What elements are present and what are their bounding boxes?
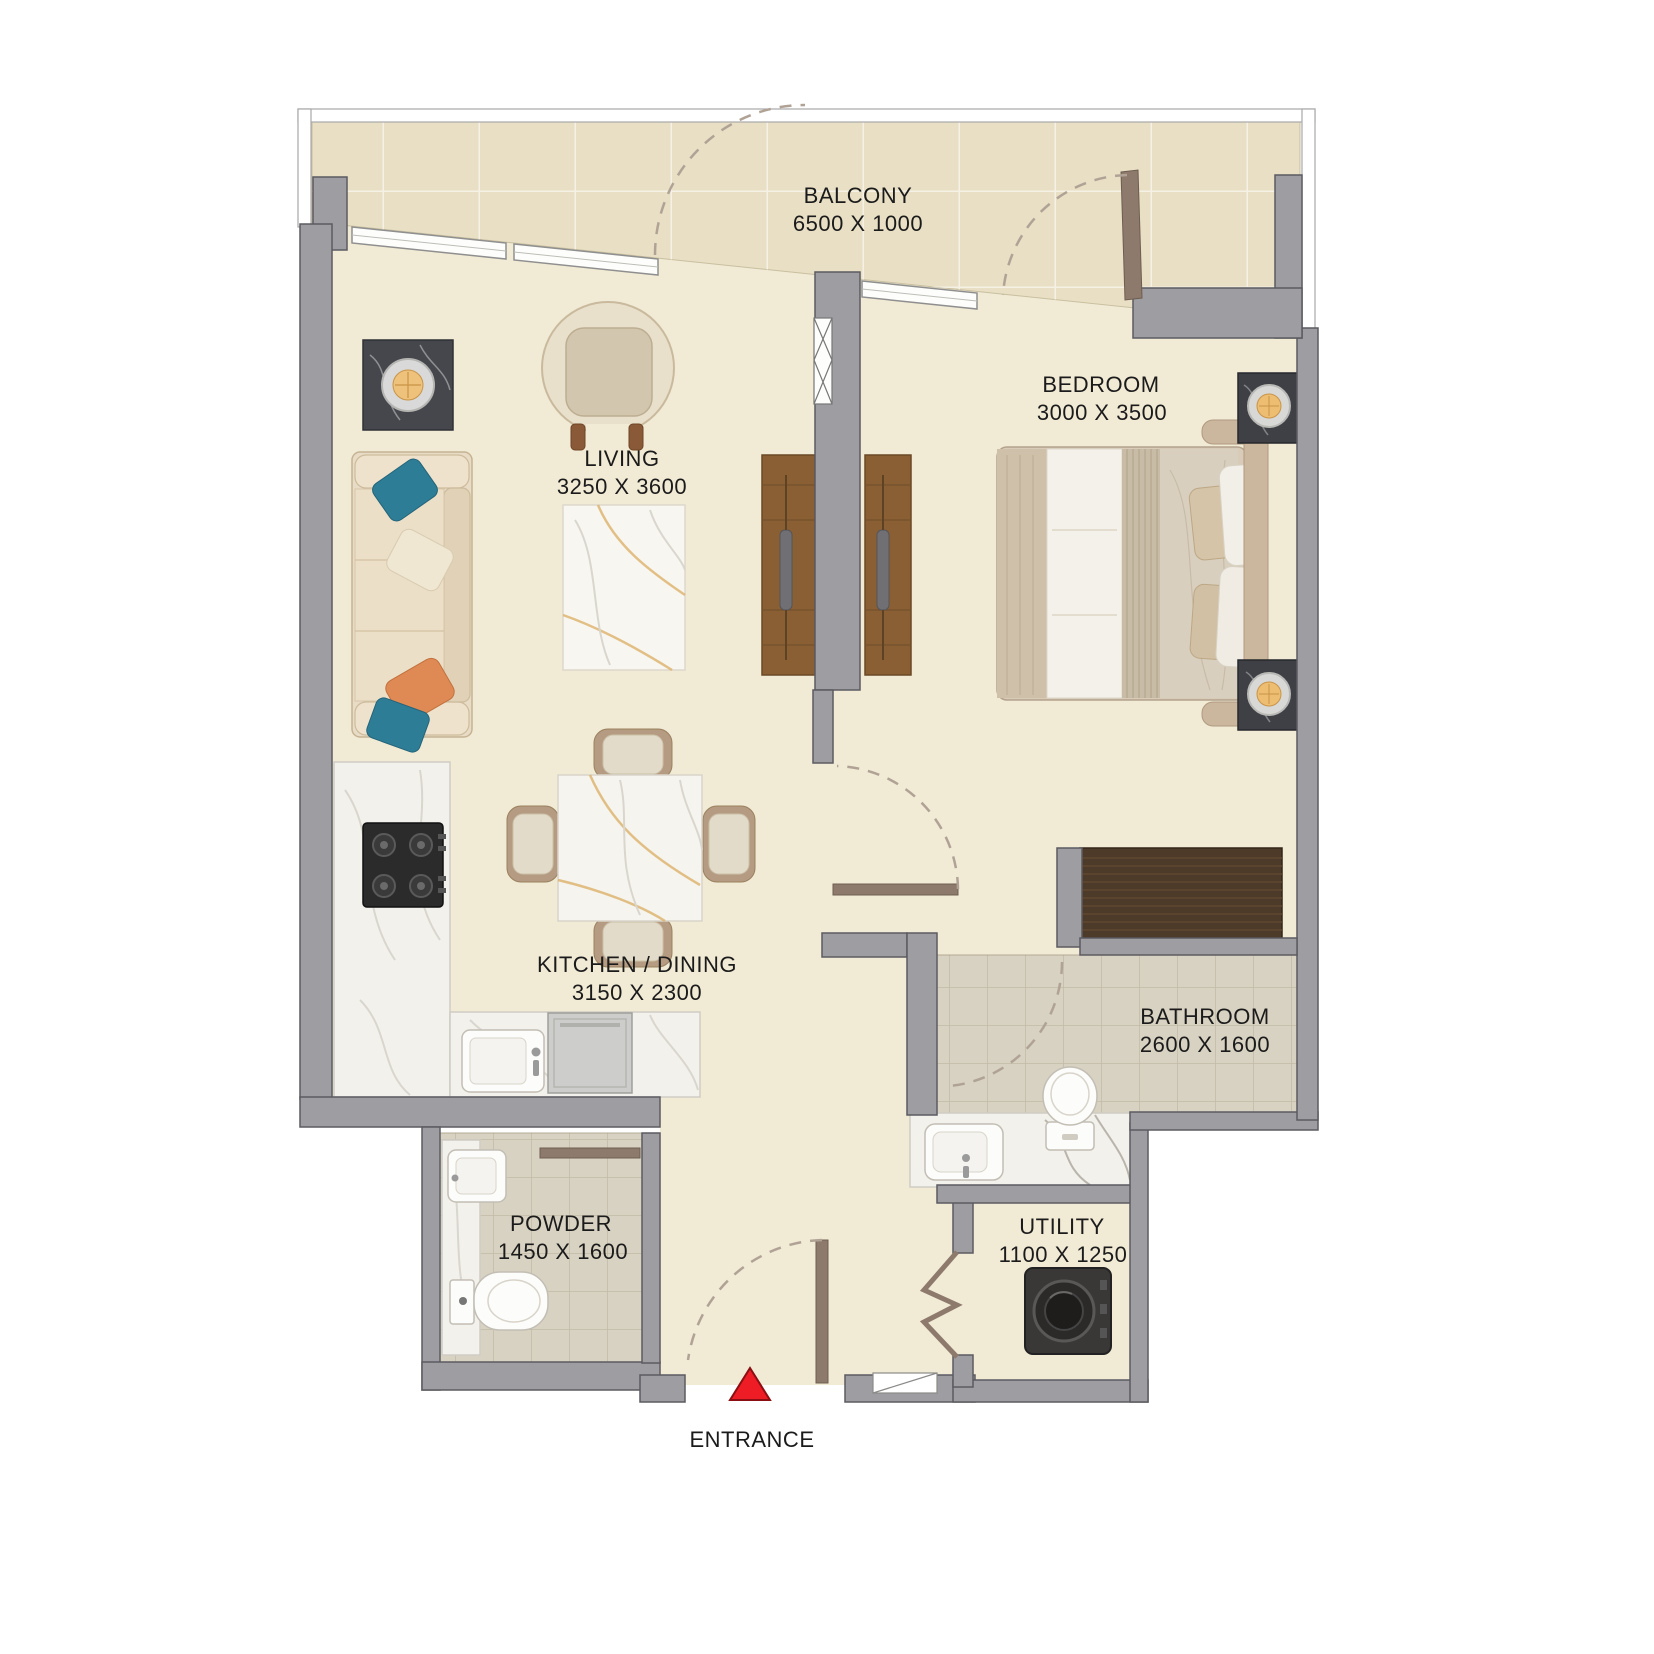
faucet: [962, 1154, 970, 1162]
room-label-utility: UTILITY: [1019, 1214, 1104, 1239]
room-dims-balcony: 6500 X 1000: [793, 211, 923, 236]
bathroom-vanity: [910, 1113, 1133, 1187]
room-label-balcony: BALCONY: [804, 183, 913, 208]
toilet-powder: [450, 1272, 548, 1330]
room-label-powder: POWDER: [510, 1211, 612, 1236]
sofa: [352, 452, 472, 754]
dining-chair: [507, 806, 559, 882]
room-dims-powder: 1450 X 1600: [498, 1239, 628, 1264]
room-dims-bedroom: 3000 X 3500: [1037, 400, 1167, 425]
bed: [997, 420, 1268, 726]
wardrobe: [1080, 848, 1282, 938]
toilet-bathroom: [1043, 1067, 1097, 1150]
entrance-label: ENTRANCE: [689, 1427, 814, 1452]
bed-throw: [1122, 449, 1160, 698]
dining-table: [558, 775, 702, 921]
bed-sheet: [1047, 449, 1122, 698]
room-label-living: LIVING: [584, 446, 659, 471]
washing-machine: [1025, 1268, 1111, 1354]
sliding-door-powder: [540, 1148, 640, 1158]
door-leaf-bedroom-balcony: [1121, 170, 1142, 300]
column-detail: [814, 318, 832, 404]
room-dims-living: 3250 X 3600: [557, 474, 687, 499]
kitchen-sink: [462, 1030, 544, 1092]
nightstand-bottom: [1238, 660, 1300, 730]
room-label-bathroom: BATHROOM: [1140, 1004, 1269, 1029]
door-leaf-entrance: [816, 1240, 828, 1383]
living-rug: [563, 505, 685, 670]
floor-plan-drawing: BALCONY 6500 X 1000 LIVING 3250 X 3600 B…: [0, 0, 1654, 1654]
stove: [363, 823, 446, 907]
dining-chair: [703, 806, 755, 882]
floor-plan-page: BALCONY 6500 X 1000 LIVING 3250 X 3600 B…: [0, 0, 1654, 1654]
side-table: [363, 340, 453, 430]
faucet: [452, 1175, 459, 1182]
room-dims-bathroom: 2600 X 1600: [1140, 1032, 1270, 1057]
dining-chair: [594, 729, 672, 779]
tv-unit-bedroom: [865, 455, 911, 675]
faucet: [532, 1048, 541, 1057]
entrance-door-sill: [873, 1373, 937, 1393]
dishwasher: [548, 1013, 632, 1093]
room-dims-kitchen-dining: 3150 X 2300: [572, 980, 702, 1005]
kitchen-counter-left: [334, 762, 450, 1097]
nightstand-top: [1238, 373, 1300, 443]
room-label-kitchen-dining: KITCHEN / DINING: [537, 952, 737, 977]
door-leaf-bedroom: [833, 884, 958, 895]
room-label-bedroom: BEDROOM: [1042, 372, 1159, 397]
room-dims-utility: 1100 X 1250: [999, 1242, 1128, 1267]
tv-unit-living: [762, 455, 815, 675]
